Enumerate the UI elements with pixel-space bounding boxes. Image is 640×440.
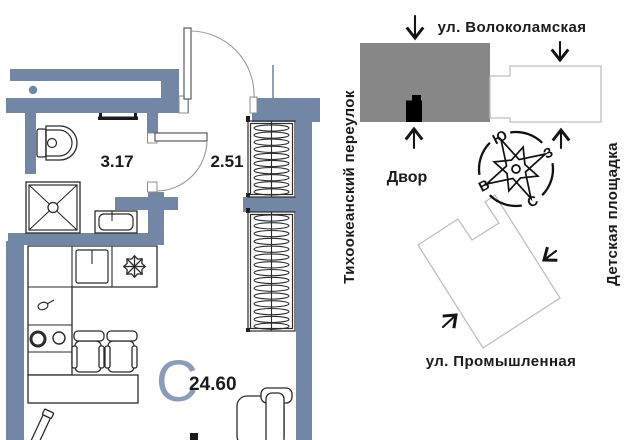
bath-right-wall-top [147,113,158,135]
compass-west-label: З [541,143,556,161]
corridor-wall-return [161,69,179,98]
neighbor-building [490,66,601,122]
door-swing-arc [190,31,254,98]
playground-label: Детская площадка [604,142,621,286]
rotated-building [418,195,560,348]
door-swing-arc [157,141,207,191]
floorplan-screenshot: 3.17 2.51 С 24.60 [0,0,640,440]
left-outer-wall [6,241,24,440]
window-pier [243,197,311,212]
radiator [246,208,295,332]
corridor-wall-top [10,69,179,81]
fridge-snowflake-icon [124,256,146,278]
street-top-label: ул. Волоколамская [438,19,587,36]
subject-building [360,43,490,122]
chair [105,331,137,372]
compass-east-label: В [476,176,492,195]
top-wall-left [6,98,189,113]
washbasin [95,211,137,233]
compass-south-label: Ю [490,127,510,148]
compass-rose-icon: Ю З С В [459,111,572,226]
toilet [37,126,77,160]
total-area-label: 24.60 [189,374,237,395]
bath-left-wall [25,113,36,174]
arrow-sw-icon [544,251,556,260]
door-jamb [250,97,257,113]
bathroom-door [148,133,208,192]
chair [72,331,104,372]
cutoff-mark [190,433,198,440]
door-leaf [184,28,191,99]
site-plan: Ю З С В ул. Волоколамская Тихоокеанский … [320,0,640,440]
kitchen-wall [8,233,163,245]
dining-table [28,375,138,403]
street-left-label: Тихоокеанский переулок [341,90,358,284]
floor-plan: 3.17 2.51 С 24.60 [0,0,320,440]
door-jamb [148,182,158,192]
tv-unit [29,409,54,440]
column-dot [29,86,37,94]
hall-lower-wall-h [115,197,178,210]
radiator [246,116,295,197]
armchair [237,388,292,440]
compass-north-label: С [524,192,540,211]
towel-rail [98,113,138,120]
right-outer-wall [296,113,312,440]
door-leaf [155,133,207,141]
bathroom-area-label: 3.17 [100,152,133,171]
courtyard-label: Двор [387,169,428,186]
arrow-ne-icon [443,315,456,327]
hall-area-label: 2.51 [210,152,243,171]
shower [26,182,80,233]
entrance-door [179,28,257,113]
street-bottom-label: ул. Промышленная [426,353,577,370]
